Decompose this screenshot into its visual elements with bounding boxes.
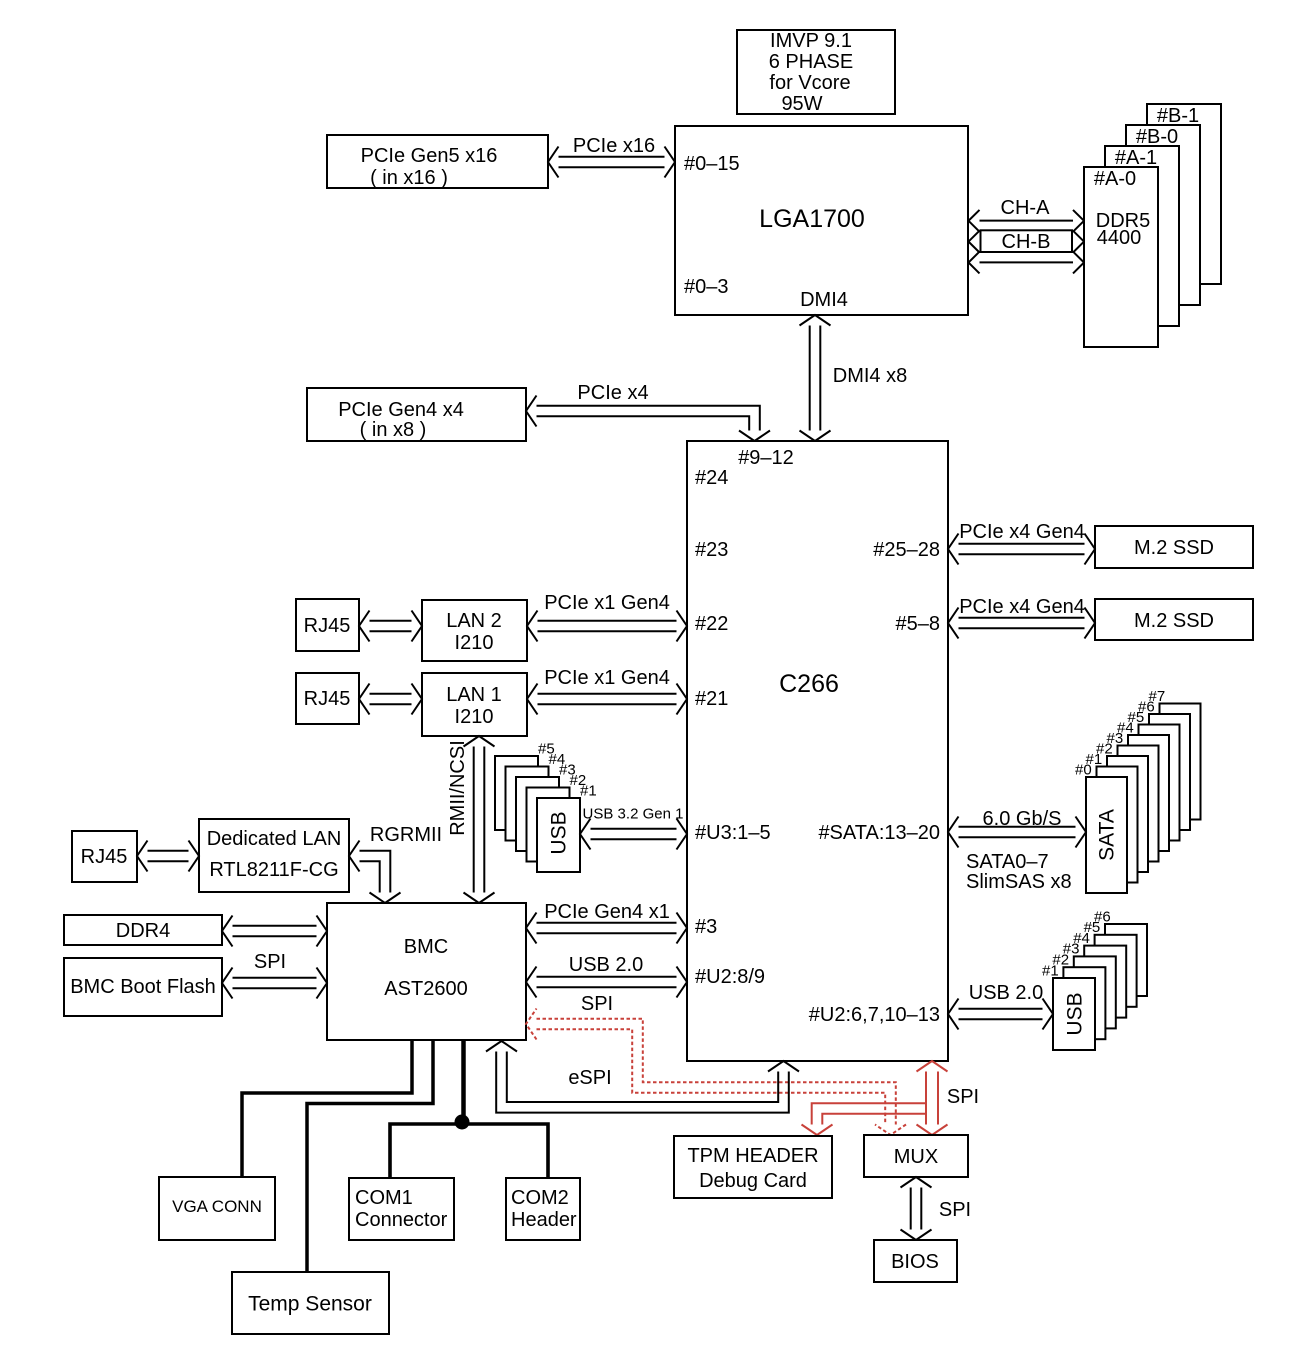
svg-text:Temp Sensor: Temp Sensor	[248, 1292, 372, 1315]
svg-text:#0–15: #0–15	[684, 153, 740, 175]
svg-text:M.2 SSD: M.2 SSD	[1134, 610, 1214, 632]
svg-text:for Vcore: for Vcore	[769, 72, 850, 94]
svg-text:SPI: SPI	[581, 993, 613, 1015]
svg-text:#SATA:13–20: #SATA:13–20	[818, 822, 940, 844]
svg-text:C266: C266	[779, 670, 839, 698]
svg-text:LAN 1: LAN 1	[446, 684, 502, 706]
svg-text:DMI4 x8: DMI4 x8	[833, 365, 907, 387]
svg-text:eSPI: eSPI	[568, 1067, 611, 1089]
svg-text:#A-1: #A-1	[1115, 147, 1157, 169]
svg-text:#9–12: #9–12	[738, 447, 794, 469]
svg-text:RJ45: RJ45	[81, 846, 128, 868]
svg-text:PCIe x1 Gen4: PCIe x1 Gen4	[544, 667, 670, 689]
svg-text:USB 2.0: USB 2.0	[569, 954, 643, 976]
svg-text:#22: #22	[695, 613, 728, 635]
svg-text:TPM HEADER: TPM HEADER	[687, 1145, 818, 1167]
svg-text:( in x8 ): ( in x8 )	[360, 419, 427, 441]
svg-text:4400: 4400	[1097, 227, 1142, 249]
svg-text:( in x16 ): ( in x16 )	[370, 167, 448, 189]
svg-text:#23: #23	[695, 539, 728, 561]
svg-text:DMI4: DMI4	[800, 289, 848, 311]
svg-text:Debug Card: Debug Card	[699, 1170, 807, 1192]
svg-text:PCIe Gen5 x16: PCIe Gen5 x16	[361, 145, 498, 167]
svg-text:SATA0–7: SATA0–7	[966, 851, 1049, 873]
svg-text:PCIe x1 Gen4: PCIe x1 Gen4	[544, 592, 670, 614]
svg-text:PCIe x4: PCIe x4	[577, 382, 648, 404]
svg-text:I210: I210	[455, 706, 494, 728]
svg-text:#21: #21	[695, 688, 728, 710]
svg-text:#0–3: #0–3	[684, 276, 729, 298]
svg-text:#U2:6,7,10–13: #U2:6,7,10–13	[809, 1004, 940, 1026]
svg-text:#U3:1–5: #U3:1–5	[695, 822, 771, 844]
svg-text:RTL8211F-CG: RTL8211F-CG	[209, 859, 338, 881]
svg-text:LAN 2: LAN 2	[446, 610, 502, 632]
svg-text:COM1: COM1	[355, 1187, 413, 1209]
svg-text:RMII/NCSI: RMII/NCSI	[447, 740, 469, 836]
svg-text:#B-0: #B-0	[1136, 126, 1178, 148]
svg-text:USB: USB	[547, 811, 570, 854]
svg-text:Header: Header	[511, 1209, 577, 1231]
svg-text:SPI: SPI	[939, 1199, 971, 1221]
svg-text:SlimSAS x8: SlimSAS x8	[966, 871, 1072, 893]
svg-text:Connector: Connector	[355, 1209, 448, 1231]
svg-text:PCIe Gen4 x4: PCIe Gen4 x4	[338, 399, 464, 421]
svg-text:I210: I210	[455, 632, 494, 654]
svg-text:USB: USB	[1063, 992, 1086, 1035]
svg-text:COM2: COM2	[511, 1187, 569, 1209]
svg-text:6 PHASE: 6 PHASE	[769, 51, 853, 73]
svg-text:SPI: SPI	[947, 1086, 979, 1108]
svg-text:#1: #1	[1042, 962, 1059, 979]
svg-text:MUX: MUX	[894, 1146, 938, 1168]
svg-text:PCIe x4 Gen4: PCIe x4 Gen4	[959, 596, 1085, 618]
svg-text:#24: #24	[695, 467, 728, 489]
svg-text:USB 2.0: USB 2.0	[969, 982, 1043, 1004]
svg-text:#A-0: #A-0	[1094, 168, 1136, 190]
svg-text:#3: #3	[695, 916, 717, 938]
svg-text:#0: #0	[1075, 761, 1092, 778]
svg-text:PCIe x4 Gen4: PCIe x4 Gen4	[959, 521, 1085, 543]
svg-text:RJ45: RJ45	[304, 688, 351, 710]
svg-text:PCIe x16: PCIe x16	[573, 135, 655, 157]
svg-text:AST2600: AST2600	[384, 978, 467, 1000]
svg-text:#U2:8/9: #U2:8/9	[695, 966, 765, 988]
svg-text:VGA CONN: VGA CONN	[172, 1197, 262, 1216]
svg-text:#5–8: #5–8	[896, 613, 941, 635]
svg-text:#25–28: #25–28	[873, 539, 940, 561]
svg-text:DDR4: DDR4	[116, 920, 170, 942]
svg-text:SPI: SPI	[254, 951, 286, 973]
svg-text:CH-A: CH-A	[1001, 197, 1051, 219]
svg-text:BMC Boot Flash: BMC Boot Flash	[70, 976, 216, 998]
svg-text:#B-1: #B-1	[1157, 105, 1199, 127]
svg-text:SATA: SATA	[1095, 809, 1118, 861]
svg-text:M.2 SSD: M.2 SSD	[1134, 537, 1214, 559]
svg-text:BIOS: BIOS	[891, 1251, 939, 1273]
svg-text:RGRMII: RGRMII	[370, 824, 442, 846]
svg-text:PCIe Gen4 x1: PCIe Gen4 x1	[544, 901, 670, 923]
svg-text:#1: #1	[580, 782, 597, 799]
svg-text:IMVP 9.1: IMVP 9.1	[770, 30, 852, 52]
svg-text:USB 3.2 Gen 1: USB 3.2 Gen 1	[583, 805, 684, 822]
svg-text:95W: 95W	[781, 93, 822, 115]
svg-text:CH-B: CH-B	[1002, 231, 1051, 253]
svg-text:LGA1700: LGA1700	[759, 205, 865, 233]
svg-text:BMC: BMC	[404, 936, 448, 958]
svg-text:RJ45: RJ45	[304, 615, 351, 637]
svg-text:Dedicated LAN: Dedicated LAN	[207, 828, 342, 850]
